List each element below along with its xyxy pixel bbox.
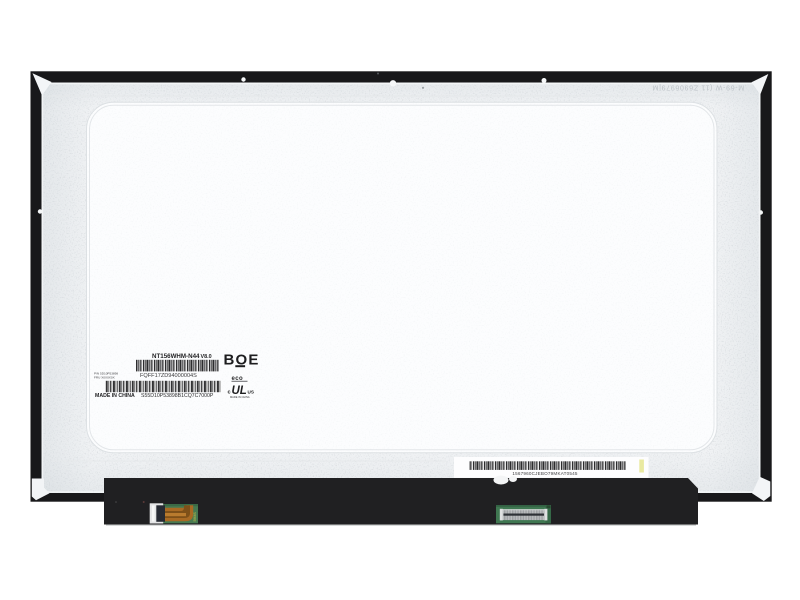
svg-text:c: c: [228, 389, 231, 395]
svg-text:FQFF17ZD94000004S: FQFF17ZD94000004S: [140, 373, 197, 379]
svg-text:FRU X0X0X0X: FRU X0X0X0X: [94, 375, 115, 379]
svg-text:5866S: 5866S: [193, 512, 197, 521]
svg-text:MADE IN CHINA: MADE IN CHINA: [95, 393, 135, 399]
svg-text:1567960CJEBO79MKAT0545: 1567960CJEBO79MKAT0545: [512, 471, 578, 476]
svg-text:M-69-W (11 Z6906979|M: M-69-W (11 Z6906979|M: [652, 84, 744, 91]
svg-text:NT156WHM-N44: NT156WHM-N44: [152, 353, 200, 360]
svg-text:V8.0: V8.0: [201, 354, 212, 360]
svg-text:US: US: [248, 389, 254, 394]
svg-text:S55D10P53898B1CQ7C7000P: S55D10P53898B1CQ7C7000P: [141, 393, 214, 399]
svg-text:MADE IN CHINA: MADE IN CHINA: [230, 395, 250, 399]
